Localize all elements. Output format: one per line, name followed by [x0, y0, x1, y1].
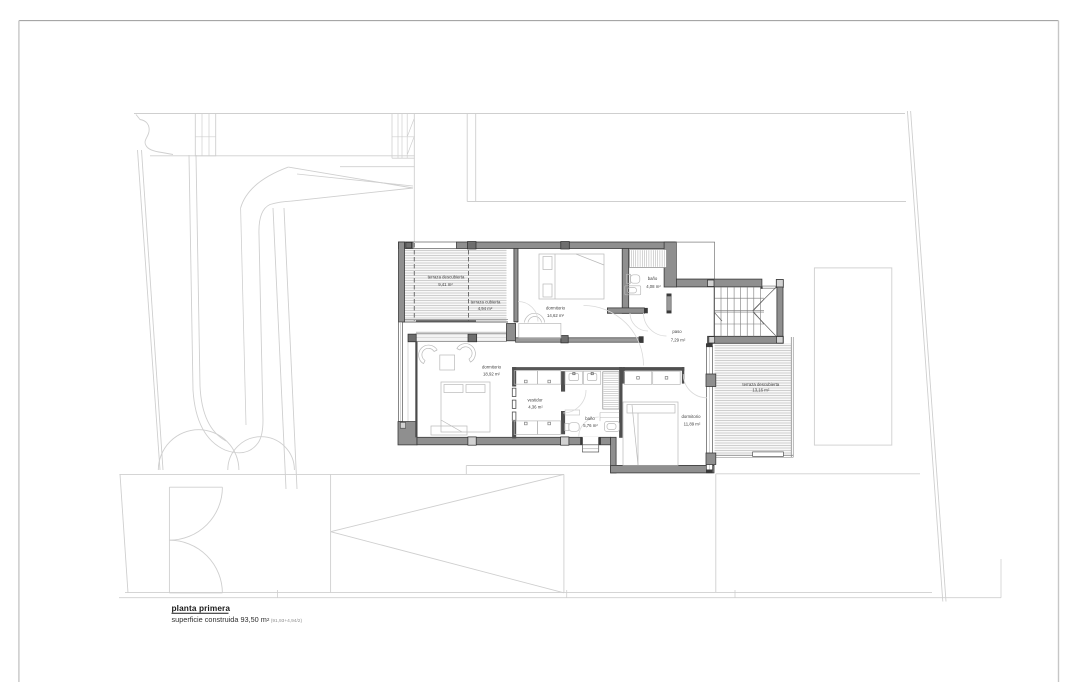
svg-text:14,62 m²: 14,62 m² — [547, 313, 565, 318]
svg-text:planta primera: planta primera — [172, 603, 231, 613]
svg-text:paso: paso — [672, 329, 682, 334]
svg-text:9,41 m²: 9,41 m² — [438, 282, 453, 287]
svg-text:7,29 m²: 7,29 m² — [671, 337, 686, 342]
svg-text:13,16 m²: 13,16 m² — [752, 388, 770, 393]
svg-text:vestidor: vestidor — [527, 398, 543, 403]
svg-text:4,36 m²: 4,36 m² — [528, 405, 543, 410]
svg-text:18,92 m²: 18,92 m² — [483, 372, 501, 377]
svg-text:5,76 m²: 5,76 m² — [583, 423, 598, 428]
svg-text:terraza descubierta: terraza descubierta — [742, 382, 779, 387]
svg-text:terraza cubierta: terraza cubierta — [471, 299, 501, 304]
svg-text:dormitorio: dormitorio — [546, 306, 566, 311]
svg-text:11,89 m²: 11,89 m² — [684, 422, 701, 427]
svg-text:4,94 m²: 4,94 m² — [478, 306, 493, 311]
svg-text:dormitorio: dormitorio — [482, 364, 502, 369]
svg-text:baño: baño — [585, 416, 595, 421]
svg-text:baño: baño — [648, 276, 658, 281]
svg-text:4,08 m²: 4,08 m² — [646, 284, 661, 289]
svg-text:terraza descubierta: terraza descubierta — [428, 274, 465, 279]
svg-text:dormitorio: dormitorio — [681, 414, 701, 419]
